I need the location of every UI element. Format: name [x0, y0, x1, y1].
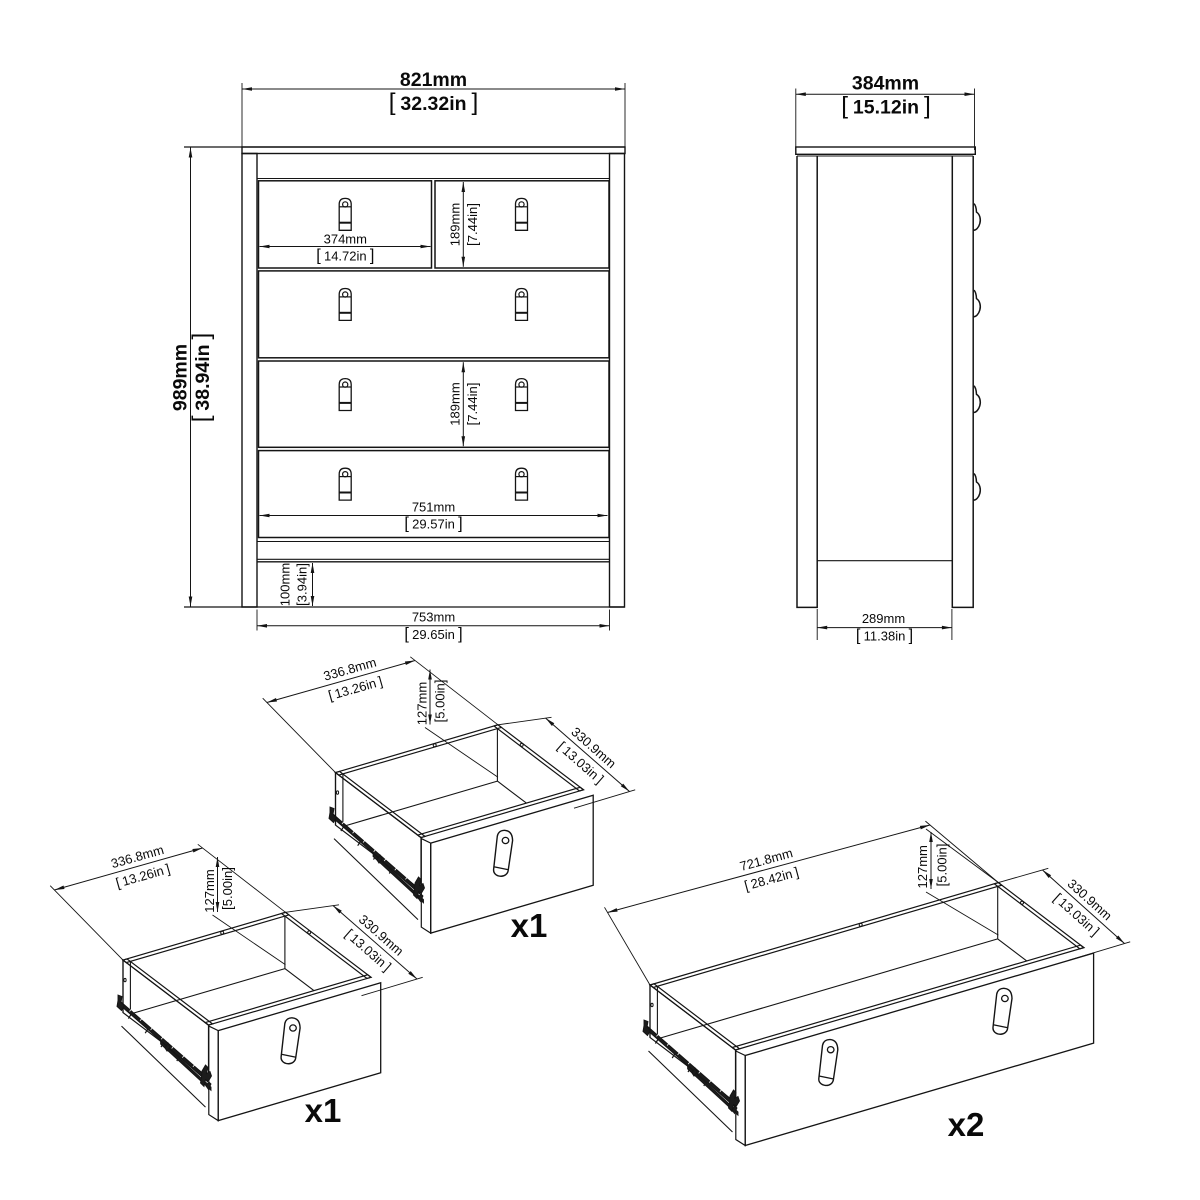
- svg-text:289mm: 289mm: [862, 611, 905, 626]
- svg-text:[5.00in]: [5.00in]: [220, 867, 235, 910]
- svg-text:[5.00in]: [5.00in]: [934, 844, 949, 887]
- svg-text:989mm: 989mm: [170, 344, 192, 411]
- svg-text:[ 11.38in ]: [ 11.38in ]: [856, 627, 913, 645]
- svg-text:[ 29.57in ]: [ 29.57in ]: [404, 514, 462, 532]
- svg-text:100mm: 100mm: [278, 563, 293, 606]
- svg-text:[ 15.12in ]: [ 15.12in ]: [841, 93, 930, 120]
- svg-text:x1: x1: [511, 907, 548, 944]
- svg-text:374mm: 374mm: [324, 231, 367, 246]
- svg-text:x1: x1: [305, 1092, 342, 1129]
- svg-text:751mm: 751mm: [412, 499, 455, 514]
- svg-text:[ 32.32in ]: [ 32.32in ]: [389, 89, 478, 116]
- svg-text:[ 14.72in ]: [ 14.72in ]: [316, 246, 374, 264]
- svg-text:[ 38.94in ]: [ 38.94in ]: [188, 333, 215, 422]
- svg-text:[7.44in]: [7.44in]: [465, 383, 480, 426]
- svg-text:753mm: 753mm: [412, 609, 455, 624]
- svg-text:127mm: 127mm: [415, 682, 430, 725]
- svg-text:821mm: 821mm: [400, 69, 467, 91]
- svg-text:127mm: 127mm: [915, 845, 930, 888]
- svg-text:[7.44in]: [7.44in]: [465, 203, 480, 246]
- svg-text:127mm: 127mm: [202, 869, 217, 912]
- svg-text:[ 29.65in ]: [ 29.65in ]: [404, 625, 462, 643]
- svg-text:384mm: 384mm: [852, 73, 919, 95]
- svg-text:189mm: 189mm: [448, 382, 463, 425]
- svg-text:[3.94in]: [3.94in]: [295, 563, 310, 606]
- svg-text:[5.00in]: [5.00in]: [433, 680, 448, 723]
- svg-text:x2: x2: [948, 1106, 985, 1143]
- svg-text:189mm: 189mm: [448, 203, 463, 246]
